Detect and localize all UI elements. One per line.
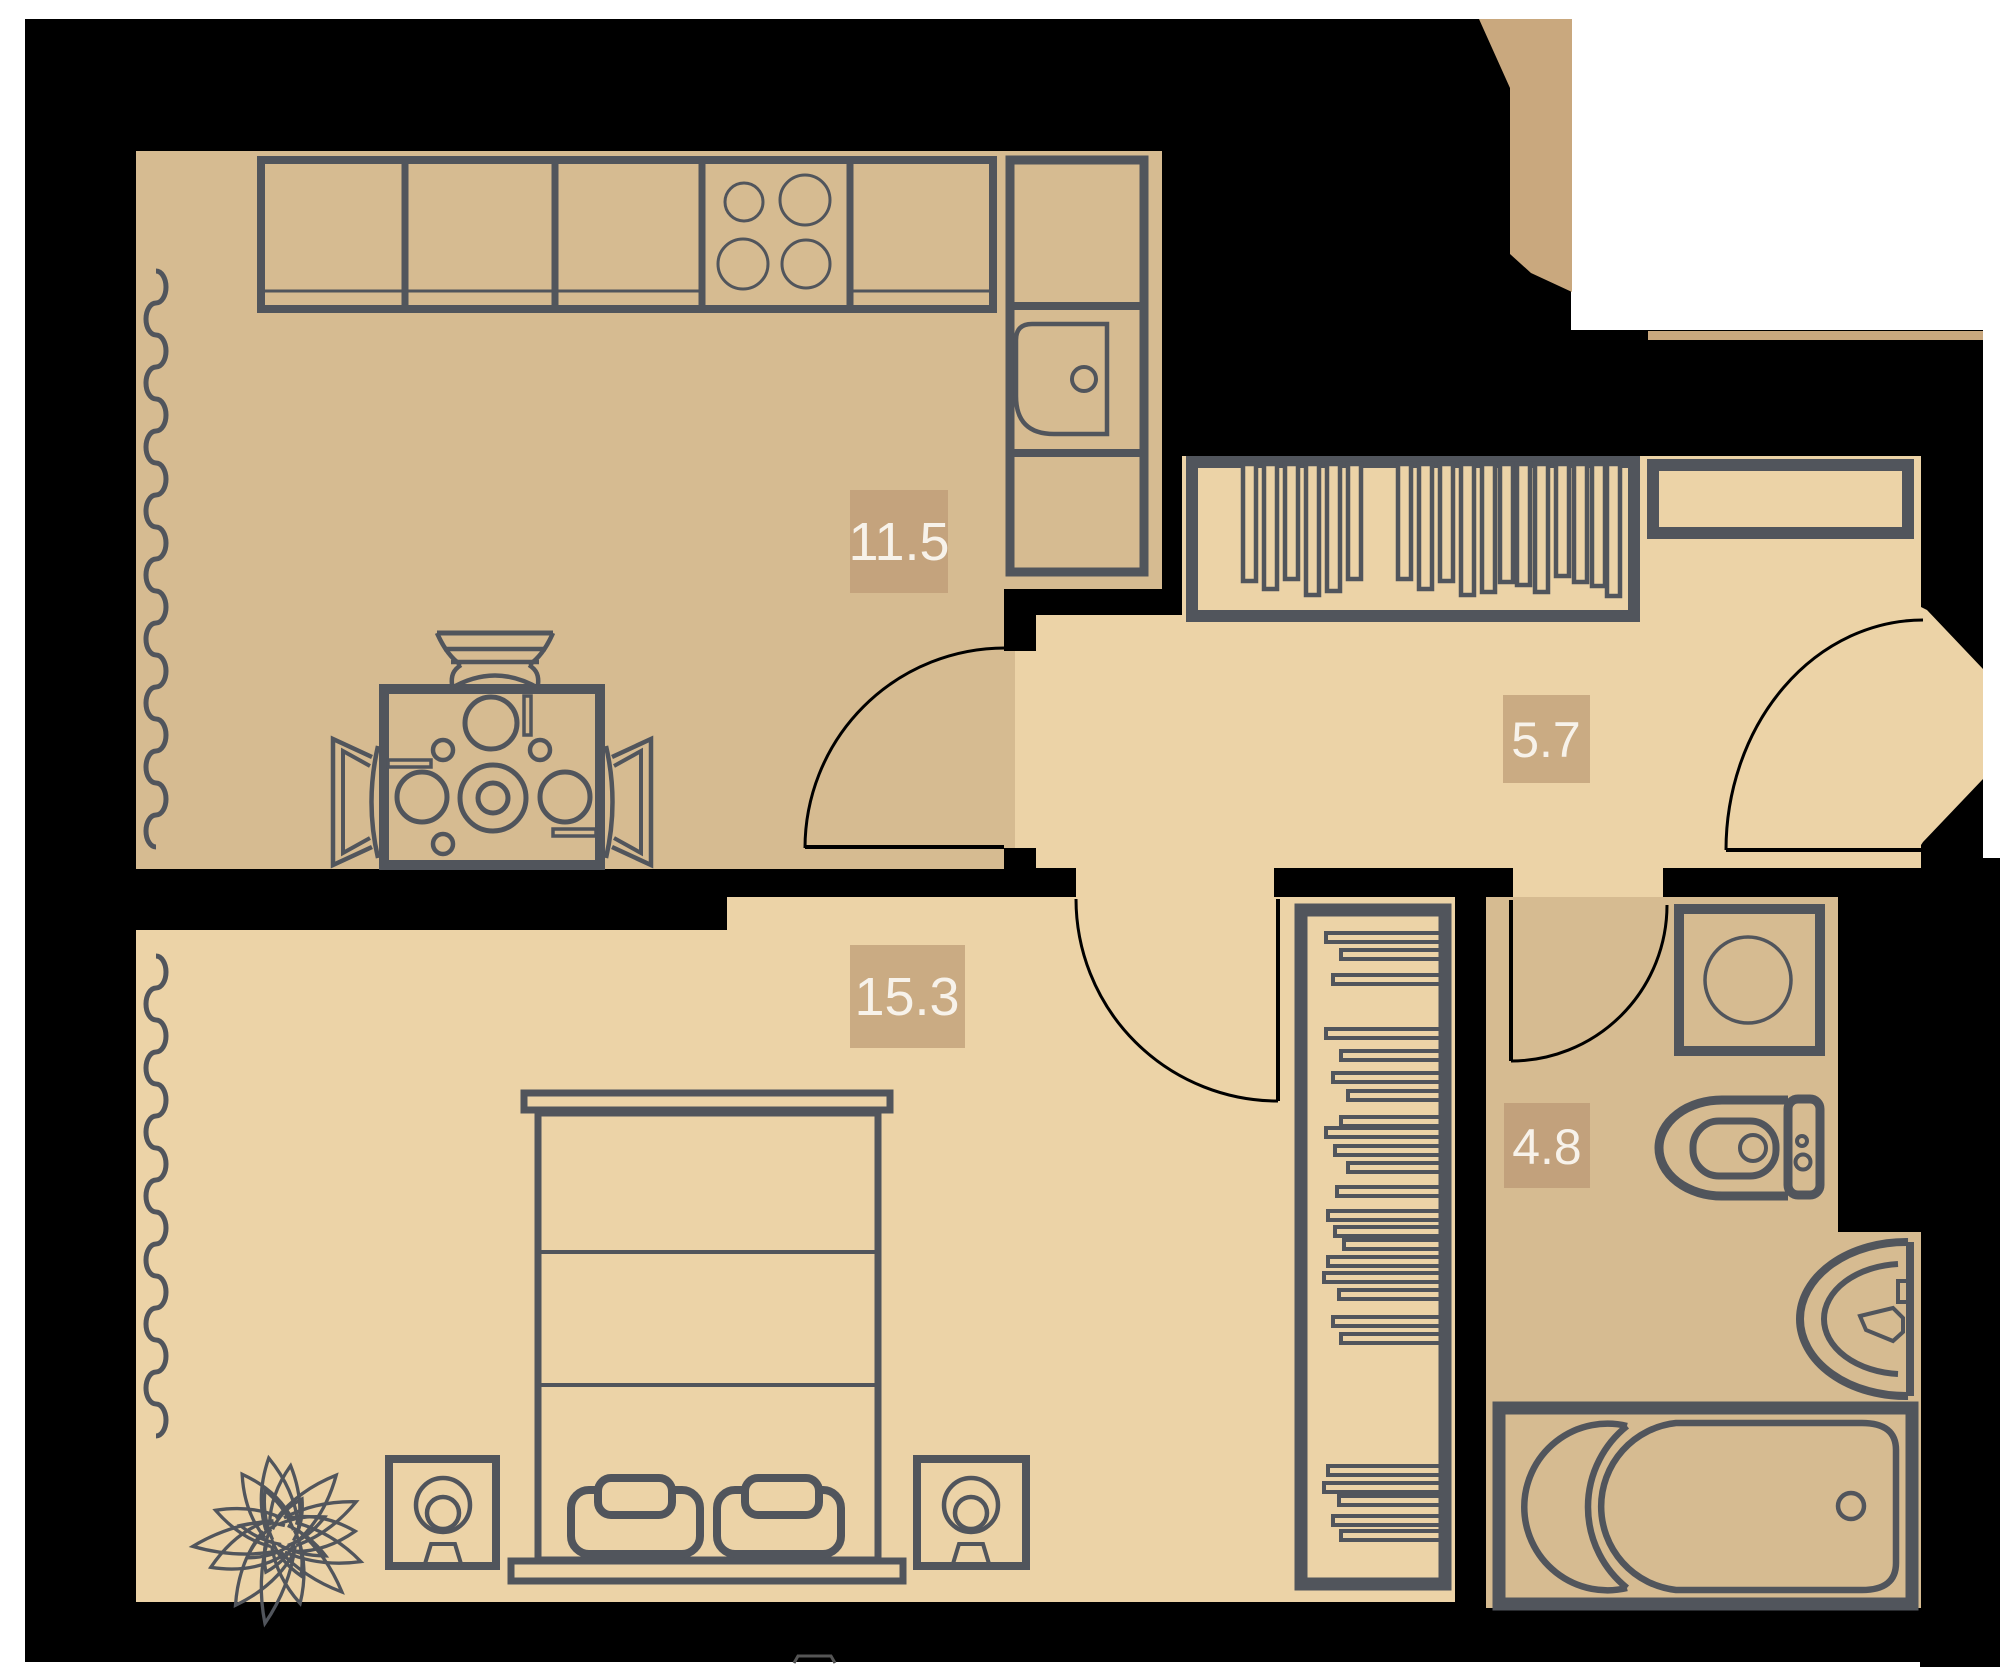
svg-text:15.3: 15.3 xyxy=(854,967,959,1027)
svg-text:5.7: 5.7 xyxy=(1511,712,1581,768)
svg-text:11.5: 11.5 xyxy=(848,512,949,572)
svg-text:4.8: 4.8 xyxy=(1512,1119,1582,1175)
